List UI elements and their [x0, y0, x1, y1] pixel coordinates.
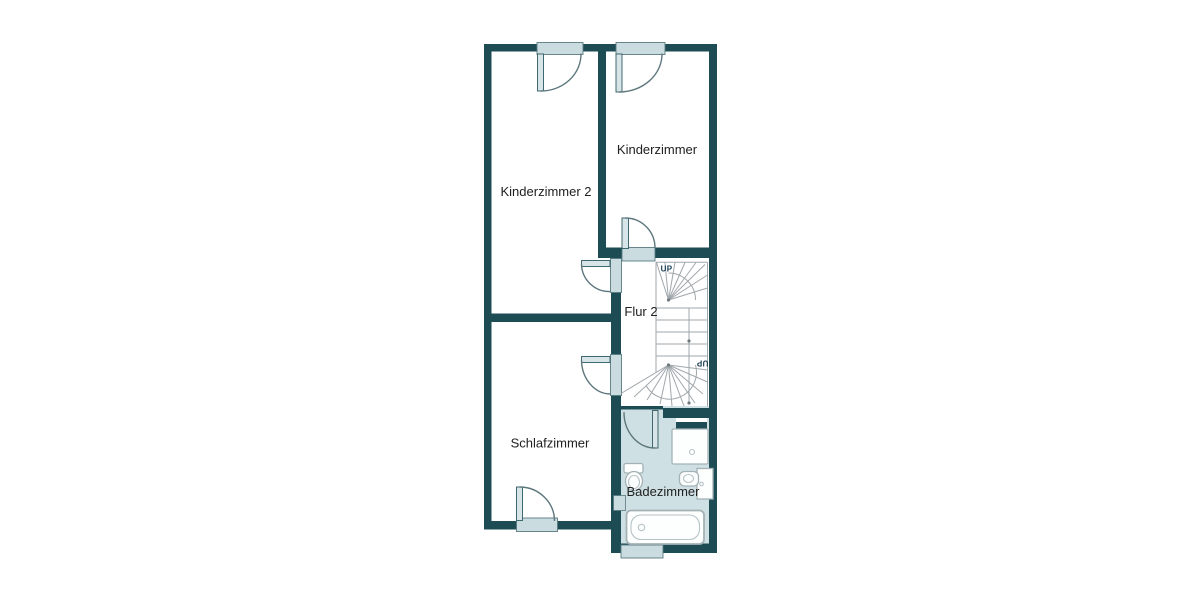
door-kinderzimmer-window	[616, 54, 662, 93]
door-swing-arc	[619, 54, 662, 93]
shower	[672, 429, 708, 464]
door-leaf	[582, 357, 611, 363]
threshold-flur-schlafzimmer-door	[611, 355, 622, 396]
door-kinderzimmer-flur	[622, 218, 655, 249]
window-badezimmer	[621, 545, 663, 558]
window-kinderzimmer-2	[537, 43, 583, 55]
door-swing-arc	[541, 54, 582, 92]
threshold-flur-kinderzimmer2-door	[611, 259, 622, 293]
bathtub	[627, 511, 705, 545]
wall-outer-top	[484, 44, 717, 52]
door-leaf	[653, 411, 659, 449]
room-label-kinderzimmer-2: Kinderzimmer 2	[500, 184, 591, 199]
staircase	[621, 262, 708, 406]
door-swing-arc	[520, 487, 555, 521]
wall-kinderzimmer-divider	[598, 51, 606, 258]
floorplan-canvas: Kinderzimmer Kinderzimmer 2 Flur 2 Schla…	[0, 0, 1200, 600]
wall-gap	[676, 418, 707, 422]
window-kinderzimmer	[616, 43, 665, 55]
stair-treads	[656, 308, 708, 356]
room-label-kinderzimmer: Kinderzimmer	[617, 142, 698, 157]
wall-bath-door-lintel	[621, 406, 663, 410]
door-flur-kinderzimmer-2	[582, 261, 611, 292]
stair-direction-labels: UP UP	[661, 265, 709, 368]
room-label-badezimmer: Badezimmer	[627, 484, 701, 499]
door-swing-arc	[625, 218, 655, 248]
room-label-schlafzimmer: Schlafzimmer	[511, 436, 590, 451]
stair-winder-bottom	[621, 365, 708, 406]
door-swing-arc	[582, 264, 611, 292]
door-leaf	[538, 54, 544, 91]
radiator	[614, 496, 626, 511]
door-leaf	[582, 261, 611, 267]
door-flur-schlafzimmer	[582, 357, 611, 395]
room-label-flur-2: Flur 2	[624, 304, 657, 319]
up-label-top: UP	[661, 265, 673, 274]
wall-stairs-bathroom	[663, 408, 709, 418]
door-leaf	[517, 487, 523, 521]
wall-schlafzimmer-top	[484, 314, 621, 323]
threshold-kinderzimmer-door	[622, 248, 655, 262]
door-leaf	[616, 54, 622, 92]
door-schlafzimmer-window	[517, 487, 555, 521]
up-label-bottom: UP	[696, 359, 708, 368]
door-swing-arc	[582, 360, 611, 394]
wall-kinderzimmer-bottom-right	[655, 248, 709, 259]
door-kinderzimmer-2-window	[538, 54, 582, 92]
wall-outer-left	[484, 44, 492, 530]
door-leaf	[622, 218, 629, 249]
floor-plan-drawing: Kinderzimmer Kinderzimmer 2 Flur 2 Schla…	[0, 0, 1200, 600]
